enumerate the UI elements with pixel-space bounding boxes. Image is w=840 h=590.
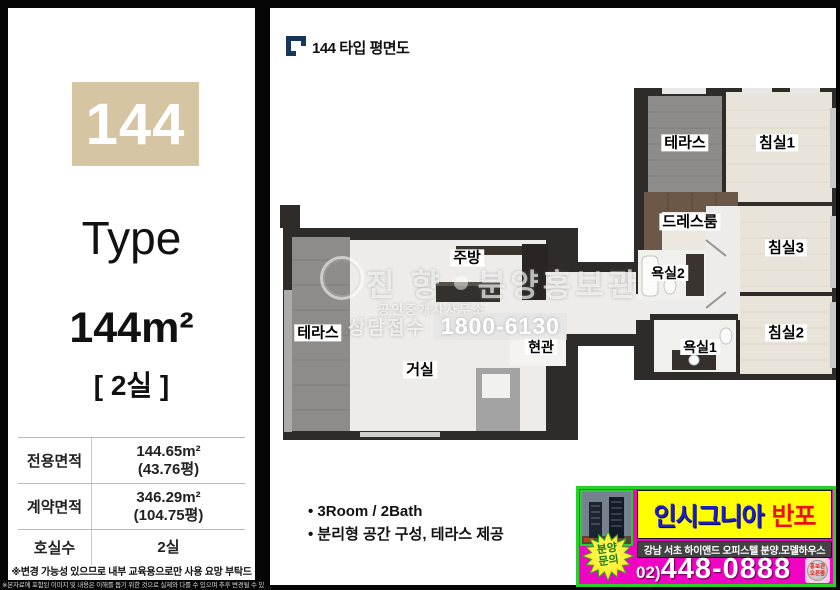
- main-area: 144 타입 평면도: [270, 8, 836, 585]
- room-label-bath2: 욕실2: [648, 265, 688, 281]
- room-label-bedroom3: 침실3: [765, 239, 807, 256]
- row-value: 346.29m² (104.75평): [92, 489, 245, 525]
- sticker-line2: 오픈중: [810, 571, 825, 577]
- ad-phone-number: 448-0888: [661, 555, 792, 584]
- room-label-bedroom1: 침실1: [756, 134, 798, 151]
- row-value: 144.65m² (43.76평): [92, 443, 245, 479]
- corner-bracket-icon: [286, 36, 308, 58]
- plan-title-text: 144 타입 평면도: [312, 37, 409, 58]
- room-label-dressroom: 드레스룸: [659, 213, 720, 230]
- rooms-count-label: [ 2실 ]: [8, 364, 255, 404]
- unit-number: 144: [86, 91, 186, 158]
- watermark-brand-suffix: 분양홍보관: [478, 260, 641, 305]
- watermark-call-row: 상담접수 1800-6130: [348, 313, 567, 340]
- bath2-vanity: [686, 254, 704, 296]
- watermark-call-number: 1800-6130: [434, 313, 567, 340]
- feature-list: • 3Room / 2Bath • 분리형 공간 구성, 테라스 제공: [308, 500, 504, 547]
- room-label-entrance: 현관: [525, 339, 557, 355]
- table-row: 호실수 2실: [18, 529, 245, 565]
- ad-phone: 02) 448-0888: [636, 555, 791, 584]
- room-label-terrace-left: 테라스: [294, 324, 341, 341]
- room-label-terrace-top: 테라스: [661, 134, 708, 151]
- watermark-call-label: 상담접수: [348, 313, 426, 340]
- row-label: 호실수: [18, 530, 92, 565]
- type-label: Type: [8, 211, 255, 265]
- ad-inquiry-badge: 분양 문의: [581, 530, 635, 582]
- stamp-seal-icon: [320, 256, 364, 300]
- ad-open-sticker: 홍보관 오픈중: [805, 558, 830, 583]
- feature-item: • 분리형 공간 구성, 테라스 제공: [308, 523, 504, 546]
- table-row: 전용면적 144.65m² (43.76평): [18, 437, 245, 483]
- room-label-bath1: 욕실1: [680, 339, 720, 355]
- plan-title: 144 타입 평면도: [286, 36, 409, 58]
- row-value: 2실: [92, 539, 245, 557]
- ad-banner[interactable]: 인시그니아 반포 강남 서초 하이앤드 오피스텔 분양.모델하우스 02) 44…: [576, 486, 836, 587]
- registered-mark-icon: [454, 276, 468, 290]
- ad-phone-prefix: 02): [636, 563, 661, 583]
- area-label: 144m²: [8, 304, 255, 353]
- page: 144 Type 144m² [ 2실 ] 전용면적 144.65m² (43.…: [0, 0, 840, 590]
- ad-brand-primary: 인시그니아: [653, 497, 763, 533]
- feature-item: • 3Room / 2Bath: [308, 500, 504, 523]
- table-row: 계약면적 346.29m² (104.75평): [18, 483, 245, 529]
- spec-table: 전용면적 144.65m² (43.76평) 계약면적 346.29m² (10…: [18, 437, 245, 565]
- room-label-living: 거실: [403, 361, 437, 378]
- badge-line2: 문의: [598, 555, 620, 569]
- floor-plan: 진 향 분양홍보관 공인중개사사무소 상담접수 1800-6130 테라스 침실…: [270, 80, 836, 490]
- room-label-kitchen: 주방: [450, 249, 484, 266]
- footer-disclaimer: ※본자료에 포함된 이미지 및 내용은 이해를 돕기 위한 것으로 실제와 다를…: [2, 579, 264, 589]
- row-label: 전용면적: [18, 438, 92, 483]
- row-label: 계약면적: [18, 484, 92, 529]
- room-label-bedroom2: 침실2: [765, 324, 807, 341]
- sidebar-panel: 144 Type 144m² [ 2실 ] 전용면적 144.65m² (43.…: [8, 8, 255, 580]
- unit-number-badge: 144: [72, 82, 199, 166]
- ad-brand-band: 인시그니아 반포: [637, 490, 832, 539]
- ad-brand-secondary: 반포: [772, 497, 816, 533]
